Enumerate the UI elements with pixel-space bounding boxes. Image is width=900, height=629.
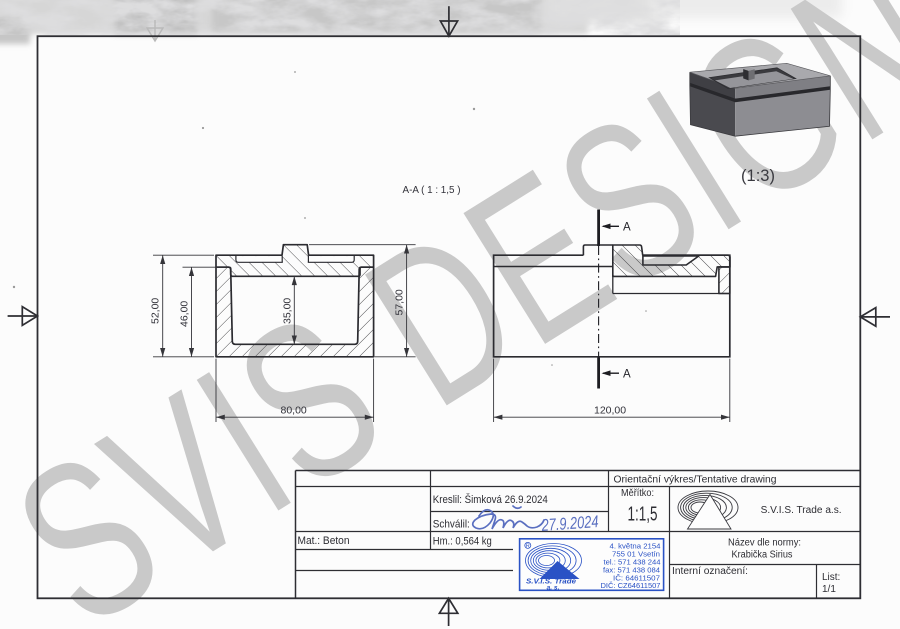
svg-text:DIČ: CZ64611507: DIČ: CZ64611507	[601, 581, 661, 590]
svg-text:List:: List:	[822, 572, 840, 583]
svg-text:120,00: 120,00	[594, 404, 626, 416]
svg-text:A: A	[623, 222, 631, 234]
svg-text:Krabička Sirius: Krabička Sirius	[732, 550, 793, 561]
svg-text:46,00: 46,00	[178, 301, 190, 327]
svg-text:A-A ( 1 : 1,5 ): A-A ( 1 : 1,5 )	[403, 185, 461, 196]
svg-text:Hm.: 0,564 kg: Hm.: 0,564 kg	[433, 536, 492, 548]
svg-text:80,00: 80,00	[281, 404, 307, 416]
svg-text:52,00: 52,00	[150, 298, 162, 324]
svg-text:A: A	[623, 368, 631, 380]
svg-text:1:1,5: 1:1,5	[628, 504, 658, 526]
svg-text:Interní označení:: Interní označení:	[672, 566, 748, 577]
svg-text:Orientační výkres/Tentative dr: Orientační výkres/Tentative drawing	[614, 475, 777, 486]
svg-text:35,00: 35,00	[282, 298, 294, 324]
svg-text:a. s.: a. s.	[547, 584, 560, 591]
svg-text:Měřítko:: Měřítko:	[621, 488, 654, 499]
svg-text:1/1: 1/1	[822, 584, 836, 595]
svg-text:Schválil:: Schválil:	[433, 518, 470, 530]
svg-text:57,00: 57,00	[393, 289, 405, 315]
svg-text:27.9.2024: 27.9.2024	[540, 512, 599, 535]
svg-text:R: R	[526, 544, 530, 550]
svg-text:Kreslil: Šimková 26.9.2024: Kreslil: Šimková 26.9.2024	[433, 493, 548, 506]
svg-text:(1:3): (1:3)	[741, 167, 775, 185]
svg-text:Mat.: Beton: Mat.: Beton	[298, 535, 350, 547]
svg-text:S.V.I.S. Trade a.s.: S.V.I.S. Trade a.s.	[761, 505, 842, 516]
svg-text:Název dle normy:: Název dle normy:	[728, 537, 801, 548]
